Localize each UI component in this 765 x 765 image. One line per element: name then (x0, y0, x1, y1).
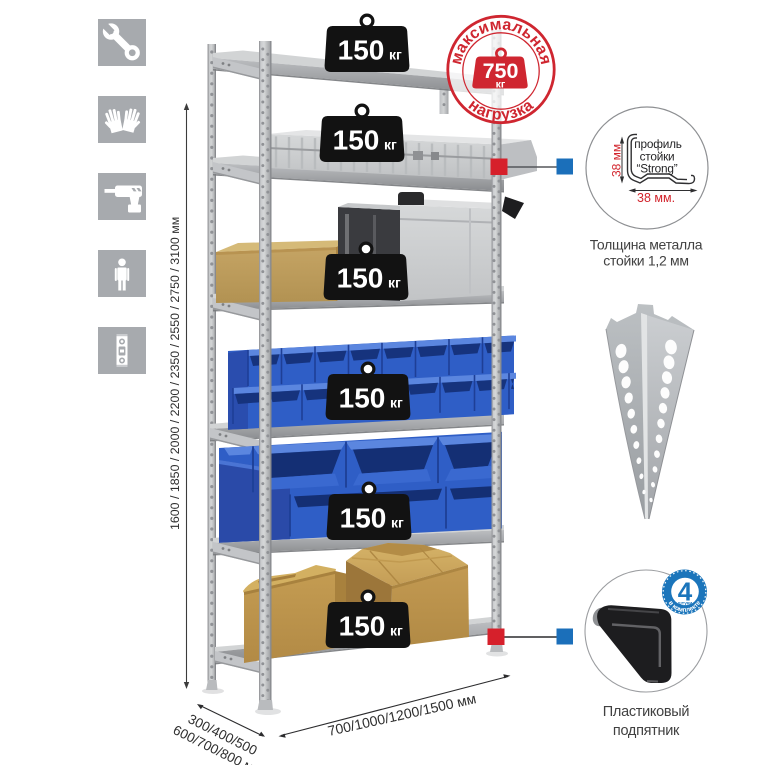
svg-text:150: 150 (333, 125, 380, 156)
svg-text:кг: кг (384, 137, 397, 153)
svg-text:38 мм: 38 мм (610, 144, 624, 177)
svg-text:150: 150 (338, 35, 385, 66)
svg-text:150: 150 (339, 611, 386, 642)
svg-text:700/1000/1200/1500 мм: 700/1000/1200/1500 мм (326, 690, 477, 739)
svg-text:Толщина металла: Толщина металла (590, 237, 703, 253)
svg-text:150: 150 (339, 383, 386, 414)
svg-text:подпятник: подпятник (613, 723, 680, 739)
svg-text:кг: кг (388, 275, 401, 291)
svg-text:стойки 1,2 мм: стойки 1,2 мм (603, 253, 688, 269)
svg-text:“Strong”: “Strong” (636, 162, 677, 176)
svg-text:Пластиковый: Пластиковый (603, 704, 690, 720)
svg-text:150: 150 (340, 503, 387, 534)
svg-text:кг: кг (390, 623, 403, 639)
svg-text:1600 / 1850 / 2000 / 2200 / 23: 1600 / 1850 / 2000 / 2200 / 2350 / 2550 … (168, 217, 182, 530)
svg-text:кг: кг (391, 515, 404, 531)
svg-text:38 мм.: 38 мм. (637, 191, 675, 205)
svg-text:кг: кг (496, 79, 506, 91)
svg-text:150: 150 (337, 263, 384, 294)
svg-text:кг: кг (389, 47, 402, 63)
svg-text:кг: кг (390, 395, 403, 411)
